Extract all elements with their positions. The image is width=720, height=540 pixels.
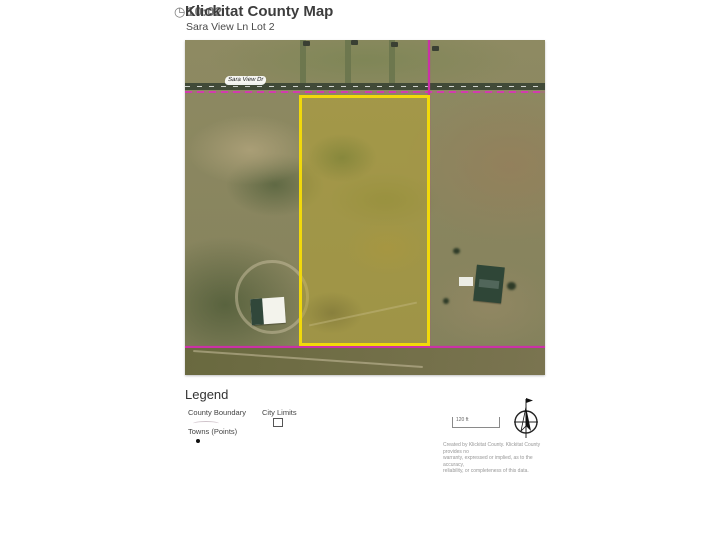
terrain-driveway [345, 40, 351, 83]
tree [453, 248, 460, 254]
page-subtitle: Sara View Ln Lot 2 [186, 21, 275, 33]
terrain-track [193, 350, 423, 368]
terrain-driveway [300, 40, 306, 83]
legend-item-city-limits: City Limits [262, 408, 297, 417]
attribution-text: Created by Klickitat County. Klickitat C… [443, 442, 549, 475]
legend-item-county-boundary: County Boundary [188, 408, 246, 417]
building-house [473, 265, 505, 304]
terrain-structure [303, 41, 310, 46]
terrain-structure [432, 46, 439, 51]
terrain-slope [185, 348, 545, 375]
scale-bar: 120 ft [452, 417, 500, 428]
north-arrow-icon [506, 394, 546, 442]
terrain-structure [391, 42, 398, 47]
county-boundary-line-road [185, 91, 545, 93]
page-title: Klickitat County Map [185, 3, 333, 20]
terrain-structure [351, 40, 358, 45]
building-shed [459, 277, 473, 286]
building-barn [250, 297, 286, 325]
building-house-roof-section [479, 279, 500, 289]
tree [443, 298, 449, 304]
parcel-boundary-sara-view-ln-lot-2 [299, 95, 430, 346]
legend-item-towns: Towns (Points) [188, 427, 237, 436]
tree [507, 282, 516, 290]
attribution-line: reliability, or completeness of this dat… [443, 468, 549, 475]
county-boundary-swatch [193, 421, 219, 426]
legend-heading: Legend [185, 387, 228, 402]
town-point-icon [196, 439, 200, 443]
terrain-track [309, 302, 417, 327]
attribution-line: Created by Klickitat County. Klickitat C… [443, 442, 549, 455]
attribution-line: warranty, expressed or implied, as to th… [443, 455, 549, 468]
road-label: Sara View Dr [224, 76, 267, 85]
aerial-map: Sara View Dr [185, 40, 545, 375]
city-limits-swatch [273, 418, 283, 427]
map-export-page: ◷10:02 Klickitat County Map Sara View Ln… [0, 0, 720, 540]
building-barn-roof-section [250, 298, 264, 325]
scale-bar-label: 120 ft [456, 417, 469, 424]
road-centerline [185, 86, 545, 87]
